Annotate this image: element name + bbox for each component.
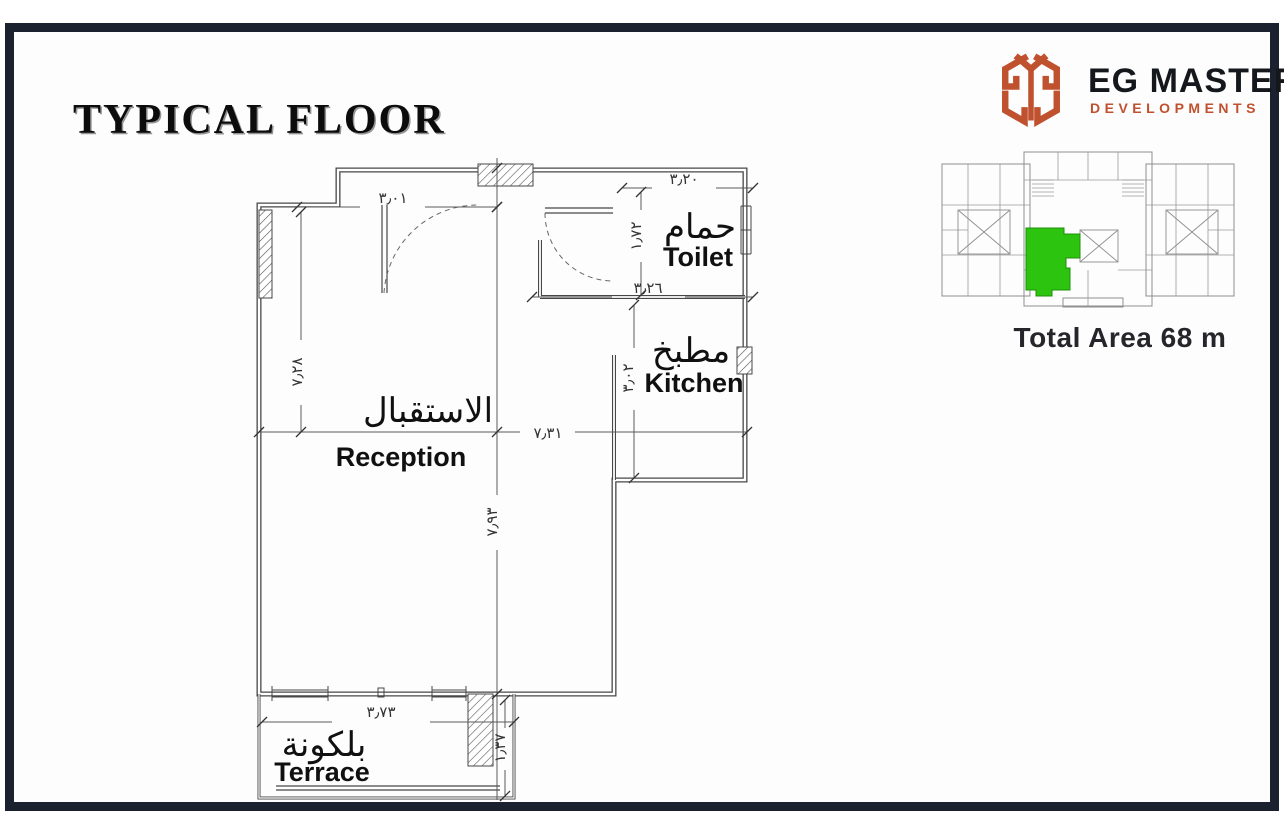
page: TYPICAL FLOOR EG MASTER DEVELOPMENTS [0, 0, 1284, 813]
total-area-label: Total Area 68 m [970, 322, 1270, 354]
page-title: TYPICAL FLOOR [73, 96, 446, 144]
key-plan-drawing [938, 150, 1238, 310]
eg-master-logo-icon [985, 46, 1077, 138]
key-plan-stairs [1032, 180, 1144, 196]
room-kitchen-english: Kitchen [644, 368, 743, 398]
brand-subtitle: DEVELOPMENTS [1090, 100, 1260, 116]
dim-toilet-width: ٣٫٢٠ [669, 171, 698, 188]
brand-name: EG MASTER [1088, 62, 1284, 101]
key-plan-cross-boxes [958, 210, 1218, 262]
column-top [478, 164, 533, 186]
dim-toilet-depth: ١٫٧٢ [628, 221, 645, 250]
dim-reception-depth: ٧٫٢٨ [289, 357, 306, 386]
door-toilet [545, 208, 613, 281]
room-reception-arabic: الاستقبال [363, 392, 493, 430]
logo-monogram [1005, 58, 1057, 121]
dim-kitchen-width: ٣٫٢٦ [633, 280, 662, 297]
room-kitchen-arabic: مطبخ [652, 332, 730, 371]
column-terrace [468, 694, 493, 766]
key-plan-interior-walls [942, 152, 1234, 306]
highlighted-unit [1026, 228, 1080, 296]
dim-kitchen-depth: ٣٫٠٢ [620, 363, 637, 392]
door-entry [382, 205, 478, 293]
room-terrace-english: Terrace [274, 757, 370, 787]
room-labels: حمام Toilet مطبخ Kitchen الاستقبال Recep… [274, 208, 743, 787]
brand-block: EG MASTER DEVELOPMENTS [985, 46, 1265, 141]
column-left [259, 210, 272, 298]
dim-reception-width: ٧٫٣١ [533, 425, 562, 442]
floor-plan-drawing: ٣٫٠١ ٣٫٢٠ ١٫٧٢ ٣٫٢٦ ٣٫٠٢ ٧٫٢٨ ٧٫٣١ ٧٫٩٣ … [240, 140, 820, 810]
dim-overall-depth: ٧٫٩٣ [484, 507, 501, 536]
room-toilet-english: Toilet [663, 242, 733, 272]
dim-terrace-width: ٣٫٧٣ [366, 704, 395, 721]
dim-entry-width: ٣٫٠١ [378, 190, 407, 207]
room-reception-english: Reception [336, 442, 467, 472]
dim-terrace-depth: ١٫٣٧ [492, 733, 509, 762]
